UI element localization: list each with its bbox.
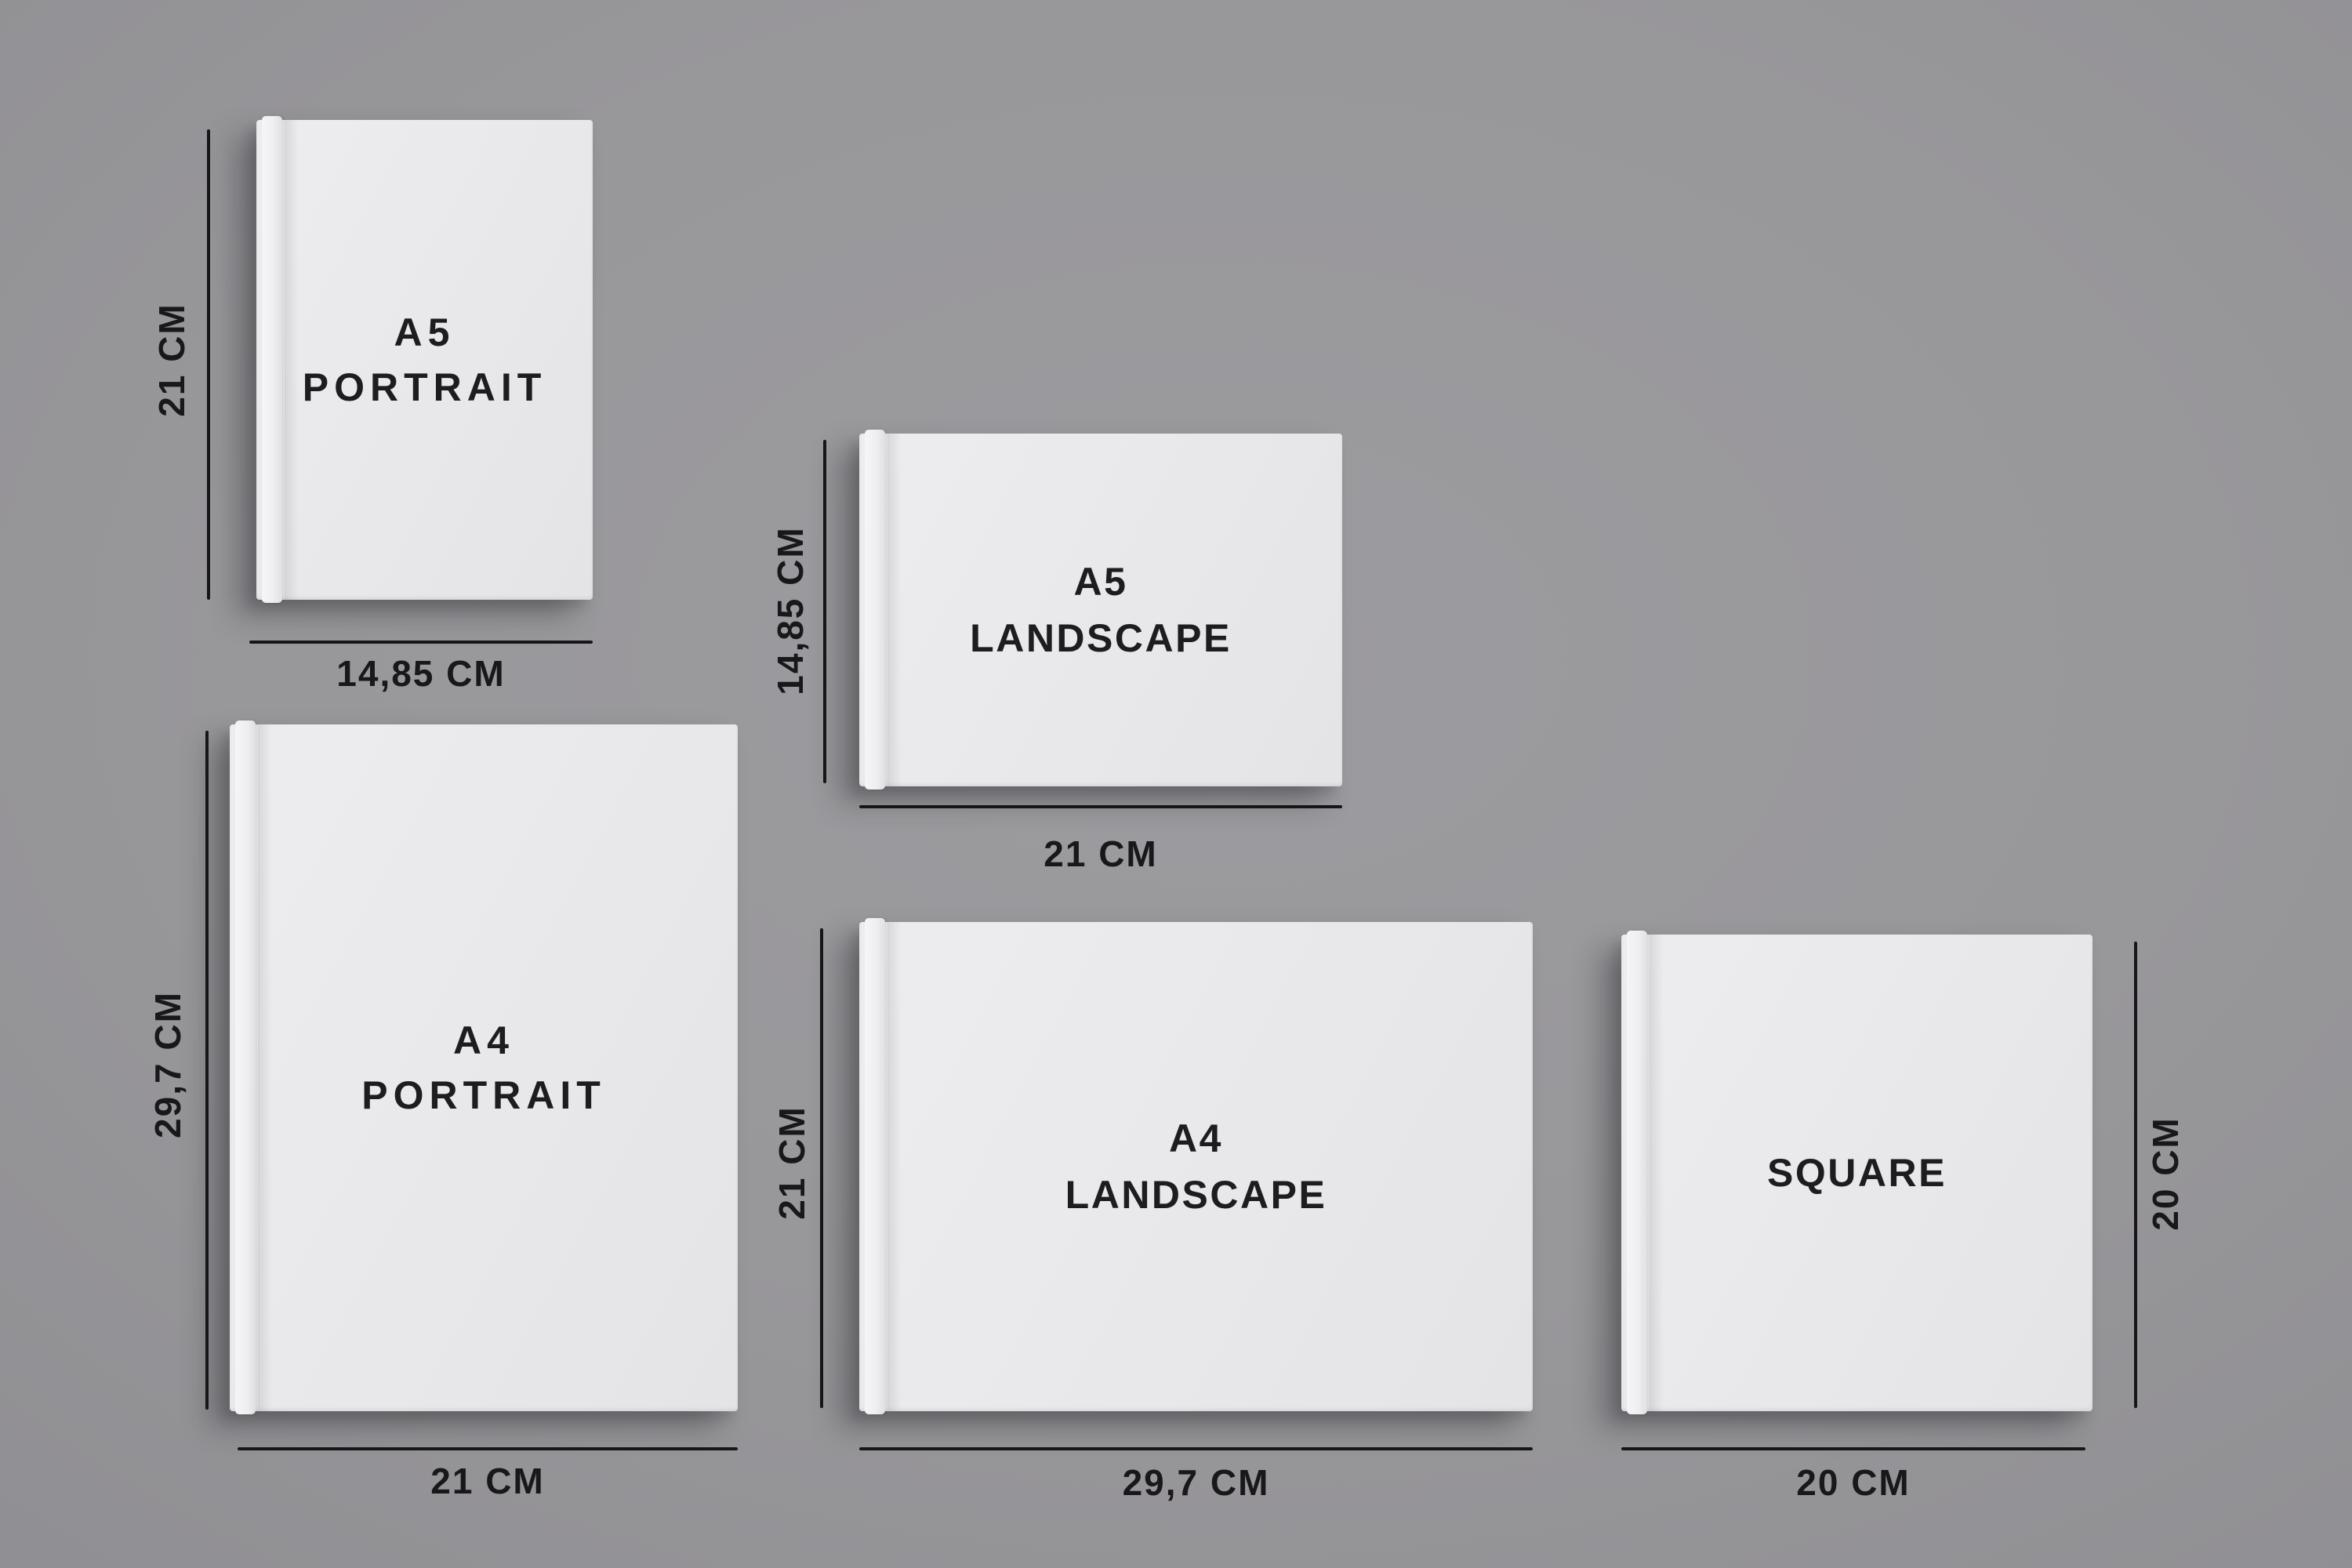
height-dimension-line-a4-portrait: [205, 731, 209, 1410]
width-dimension-label-a5-landscape: 21 CM: [859, 834, 1342, 873]
title-line-1: A4: [453, 1013, 514, 1068]
title-line-2: PORTRAIT: [303, 360, 547, 415]
book-a5-portrait: A5 PORTRAIT: [256, 120, 593, 600]
width-dimension-line-a5-portrait: [249, 641, 593, 644]
book-title-a4-portrait: A4 PORTRAIT: [230, 724, 738, 1411]
book-title-a5-portrait: A5 PORTRAIT: [256, 120, 593, 600]
height-dimension-line-a5-portrait: [207, 129, 210, 600]
width-dimension-label-a5-portrait: 14,85 CM: [249, 654, 593, 693]
book-a4-landscape: A4 LANDSCAPE: [859, 922, 1533, 1411]
size-comparison-canvas: A5 PORTRAIT 21 CM 14,85 CM A5 LANDSCAPE …: [0, 0, 2352, 1568]
book-title-square: SQUARE: [1621, 935, 2092, 1411]
title-line-2: PORTRAIT: [361, 1068, 606, 1123]
height-dimension-label-a5-landscape: 14,85 CM: [771, 438, 810, 783]
title-line-1: A5: [394, 305, 456, 360]
height-dimension-line-a5-landscape: [823, 440, 826, 783]
width-dimension-label-a4-landscape: 29,7 CM: [859, 1463, 1533, 1502]
width-dimension-label-square: 20 CM: [1621, 1463, 2085, 1502]
book-a4-portrait: A4 PORTRAIT: [230, 724, 738, 1411]
book-a5-landscape: A5 LANDSCAPE: [859, 434, 1342, 786]
title-line-2: LANDSCAPE: [1065, 1167, 1327, 1224]
title-line-2: LANDSCAPE: [970, 610, 1232, 667]
width-dimension-line-square: [1621, 1447, 2085, 1450]
title-line-1: A4: [1169, 1110, 1223, 1167]
height-dimension-line-a4-landscape: [820, 928, 823, 1408]
width-dimension-line-a5-landscape: [859, 805, 1342, 808]
width-dimension-line-a4-landscape: [859, 1447, 1533, 1450]
height-dimension-label-a4-portrait: 29,7 CM: [148, 814, 187, 1316]
width-dimension-line-a4-portrait: [238, 1447, 738, 1450]
height-dimension-line-square: [2134, 942, 2137, 1408]
height-dimension-label-a5-portrait: 21 CM: [152, 125, 191, 595]
height-dimension-label-a4-landscape: 21 CM: [772, 924, 811, 1402]
width-dimension-label-a4-portrait: 21 CM: [238, 1461, 738, 1501]
book-title-a4-landscape: A4 LANDSCAPE: [859, 922, 1533, 1411]
book-title-a5-landscape: A5 LANDSCAPE: [859, 434, 1342, 786]
title-line-1: A5: [1074, 554, 1128, 611]
title-line-1: SQUARE: [1767, 1145, 1947, 1202]
height-dimension-label-square: 20 CM: [2146, 942, 2185, 1405]
book-square: SQUARE: [1621, 935, 2092, 1411]
